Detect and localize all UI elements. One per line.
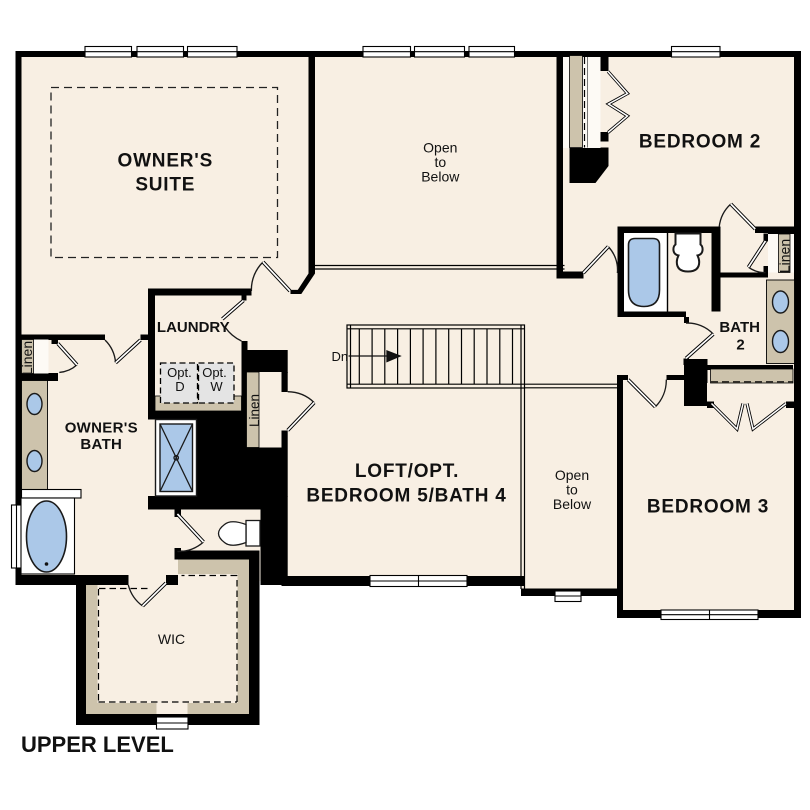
- svg-text:D: D: [175, 379, 184, 394]
- svg-text:Linen: Linen: [19, 341, 35, 375]
- svg-text:W: W: [210, 379, 223, 394]
- svg-text:Below: Below: [421, 169, 460, 185]
- svg-text:BEDROOM 3: BEDROOM 3: [647, 497, 769, 518]
- svg-text:BEDROOM 5/BATH 4: BEDROOM 5/BATH 4: [306, 486, 506, 507]
- svg-text:OWNER'S: OWNER'S: [117, 151, 213, 172]
- svg-text:SUITE: SUITE: [135, 175, 195, 196]
- svg-text:Below: Below: [553, 496, 592, 512]
- svg-text:Opt.: Opt.: [202, 365, 227, 380]
- svg-text:2: 2: [736, 337, 744, 354]
- svg-text:UPPER LEVEL: UPPER LEVEL: [21, 732, 174, 757]
- svg-text:Opt.: Opt.: [167, 365, 192, 380]
- svg-text:WIC: WIC: [158, 631, 185, 647]
- svg-text:BATH: BATH: [80, 436, 122, 453]
- svg-text:LOFT/OPT.: LOFT/OPT.: [355, 461, 459, 482]
- svg-text:Dn: Dn: [332, 349, 349, 364]
- svg-text:LAUNDRY: LAUNDRY: [157, 319, 230, 336]
- svg-text:Linen: Linen: [777, 239, 793, 273]
- svg-text:BEDROOM 2: BEDROOM 2: [639, 132, 761, 153]
- svg-text:OWNER'S: OWNER'S: [65, 420, 138, 437]
- svg-text:BATH: BATH: [719, 319, 760, 336]
- svg-text:Linen: Linen: [247, 394, 262, 427]
